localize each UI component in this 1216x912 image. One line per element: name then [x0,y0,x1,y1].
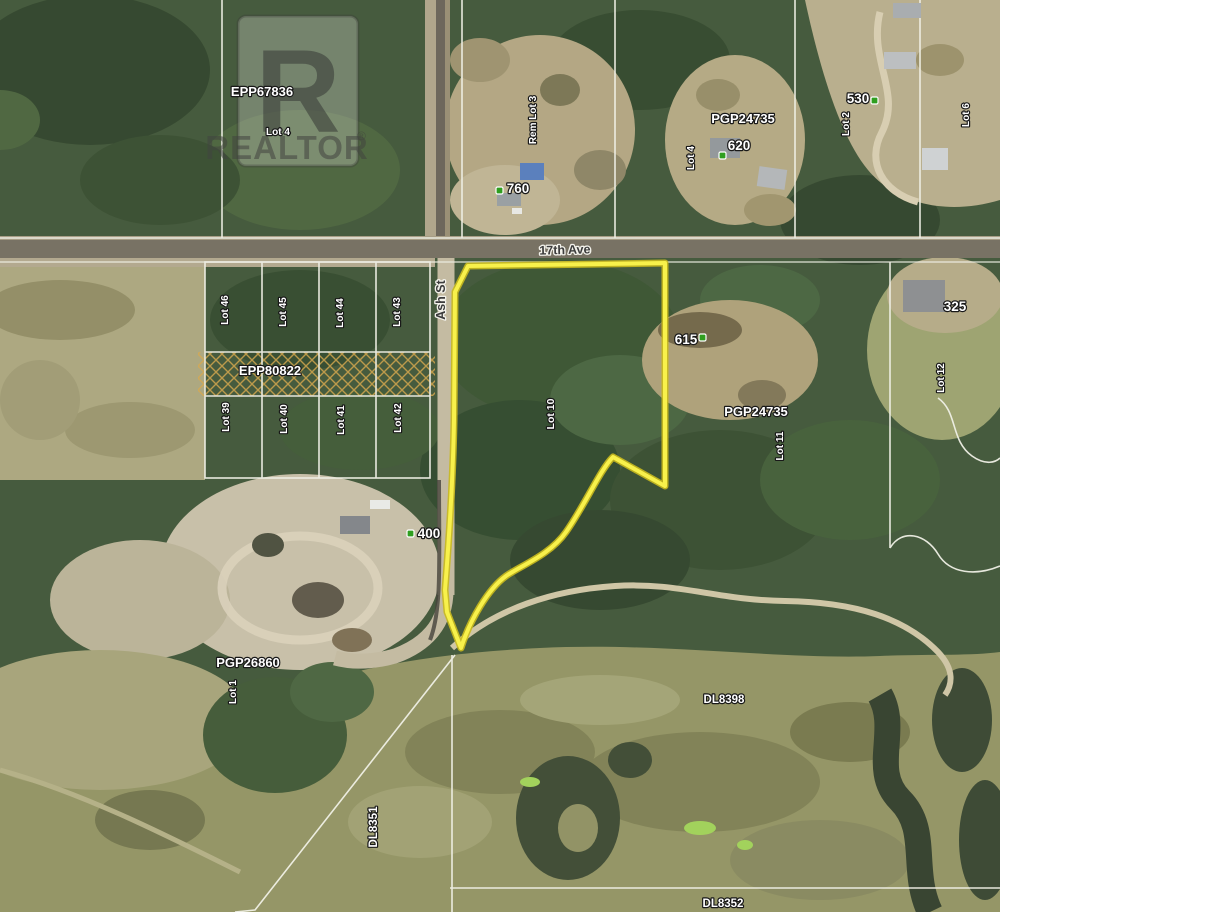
north-road [436,0,445,240]
lot-label-row2-lot42: Lot 42 [393,403,404,433]
plan-label-pgp26860: PGP26860 [216,655,280,670]
building [893,3,921,18]
building [512,208,522,214]
north-road-edge [445,0,450,240]
lot-label-row2-lot41: Lot 41 [336,405,347,435]
lot-label-lot11: Lot 11 [775,431,786,460]
plan-label-pgp24735-north: PGP24735 [711,111,775,126]
plan-label-epp67836: EPP67836 [231,84,293,99]
address-label-400: 400 [418,526,441,541]
lot-label-subject-lot10: Lot 10 [545,398,557,429]
address-label-760: 760 [507,181,530,196]
address-label-620: 620 [728,138,751,153]
listing-map-page: R REALTOR ® EPP67836 PGP24735 EPP80822 P… [0,0,1216,912]
road-allowance-hatch [198,352,435,396]
building [370,500,390,509]
lot-label-row1-lot43: Lot 43 [392,297,403,327]
lot-label-north-lot-2: Lot 2 [841,112,852,136]
lot-label-row1-lot45: Lot 45 [278,297,289,327]
lot-label-row2-lot39: Lot 39 [221,402,232,432]
street-label-ash-st: Ash St [434,279,448,319]
house-marker-400 [407,530,414,537]
street-label-17th-ave: 17th Ave [539,242,591,257]
district-label-dl8398: DL8398 [704,694,746,706]
lot-label-lot1: Lot 1 [228,680,239,704]
lot-label-north-lot-4: Lot 4 [686,146,697,170]
district-label-dl8352: DL8352 [703,898,744,910]
map-canvas: R REALTOR ® EPP67836 PGP24735 EPP80822 P… [0,0,1000,912]
lot-label-north-lot-6: Lot 6 [961,103,972,127]
house-marker-530 [871,97,878,104]
building [884,52,916,69]
north-road-shoulder [425,0,436,240]
plan-label-epp80822: EPP80822 [239,363,301,378]
building-325 [903,280,945,312]
address-label-530: 530 [847,91,870,106]
17th-ave-road [0,240,1000,258]
lot-label-row1-lot44: Lot 44 [335,298,346,328]
building [340,516,370,534]
lot-label-row1-lot46: Lot 46 [220,295,231,325]
district-label-dl8351: DL8351 [368,806,380,848]
lot-label-epp67836-lot4: Lot 4 [266,127,290,138]
building [922,148,948,170]
blue-roof-building [520,163,544,180]
house-marker-760 [496,187,503,194]
building [757,166,788,190]
address-label-615: 615 [675,332,698,347]
lot-label-row2-lot40: Lot 40 [279,404,290,434]
house-marker-620 [719,152,726,159]
address-label-325: 325 [944,299,967,314]
plan-label-pgp24735-mid: PGP24735 [724,404,788,419]
registered-trademark-symbol: ® [357,129,366,143]
lot-label-lot12: Lot 12 [936,363,947,393]
house-marker-615 [699,334,706,341]
lot-label-rem-lot-3: Rem Lot 3 [528,95,539,144]
